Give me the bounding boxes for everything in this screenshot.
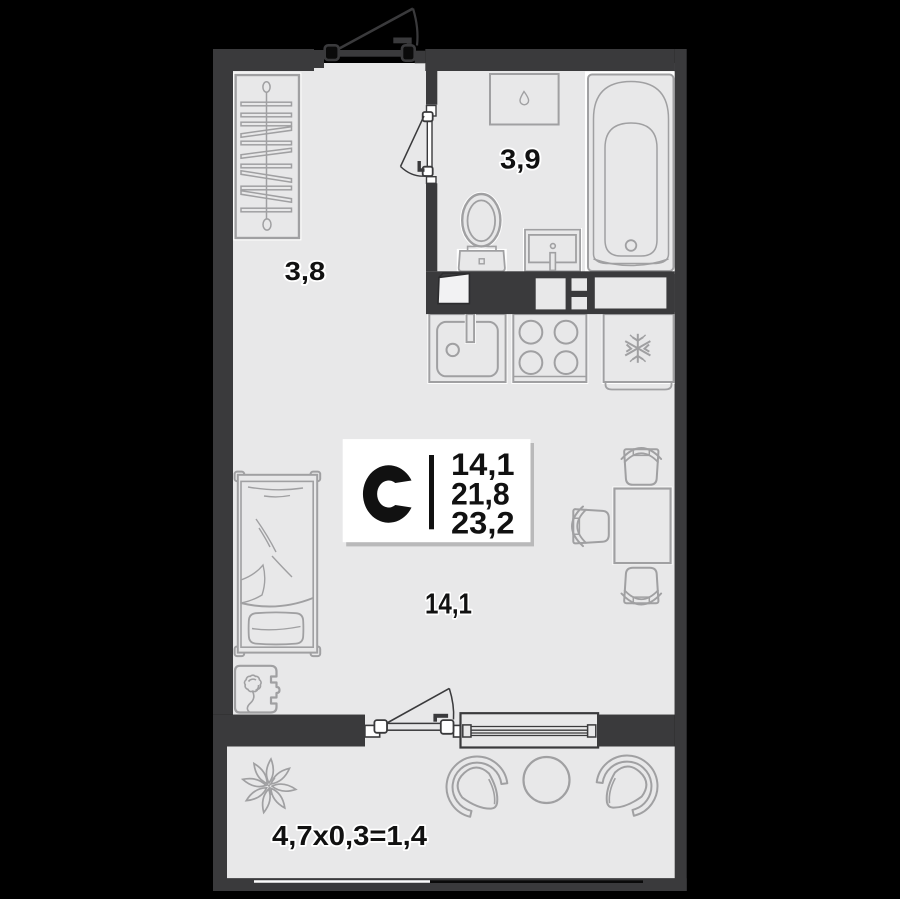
svg-text:14,1: 14,1 (425, 589, 472, 621)
svg-text:23,2: 23,2 (451, 505, 515, 541)
svg-text:3,8: 3,8 (285, 258, 326, 286)
svg-text:3,9: 3,9 (500, 143, 541, 174)
svg-text:4,7x0,3=1,4: 4,7x0,3=1,4 (272, 820, 428, 851)
